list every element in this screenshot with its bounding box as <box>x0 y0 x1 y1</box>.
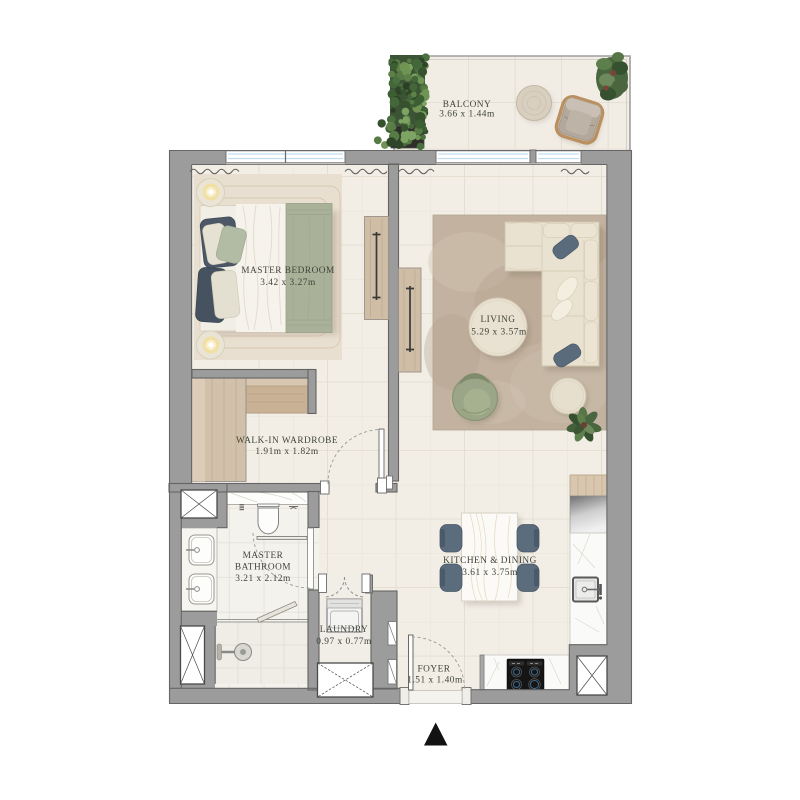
svg-text:KITCHEN & DINING: KITCHEN & DINING <box>443 556 537 566</box>
svg-text:BATHROOM: BATHROOM <box>235 563 291 573</box>
svg-text:3.66 x 1.44m: 3.66 x 1.44m <box>439 110 495 120</box>
svg-text:3.21 x 2.12m: 3.21 x 2.12m <box>235 574 291 584</box>
svg-text:3.61 x 3.75m: 3.61 x 3.75m <box>462 568 518 578</box>
svg-text:5.29 x 3.57m: 5.29 x 3.57m <box>471 328 527 338</box>
svg-text:FOYER: FOYER <box>418 665 451 675</box>
svg-text:MASTER BEDROOM: MASTER BEDROOM <box>241 266 335 276</box>
svg-text:MASTER: MASTER <box>243 551 284 561</box>
svg-text:3.42 x 3.27m: 3.42 x 3.27m <box>260 278 316 288</box>
svg-text:1.51 x 1.40m: 1.51 x 1.40m <box>407 676 463 686</box>
svg-text:1.91m x 1.82m: 1.91m x 1.82m <box>255 447 318 457</box>
svg-text:WALK-IN WARDROBE: WALK-IN WARDROBE <box>236 436 338 446</box>
svg-text:BALCONY: BALCONY <box>443 100 491 110</box>
svg-text:LIVING: LIVING <box>480 315 515 325</box>
svg-text:0.97 x 0.77m: 0.97 x 0.77m <box>316 637 372 647</box>
svg-text:LAUNDRY: LAUNDRY <box>320 625 368 635</box>
